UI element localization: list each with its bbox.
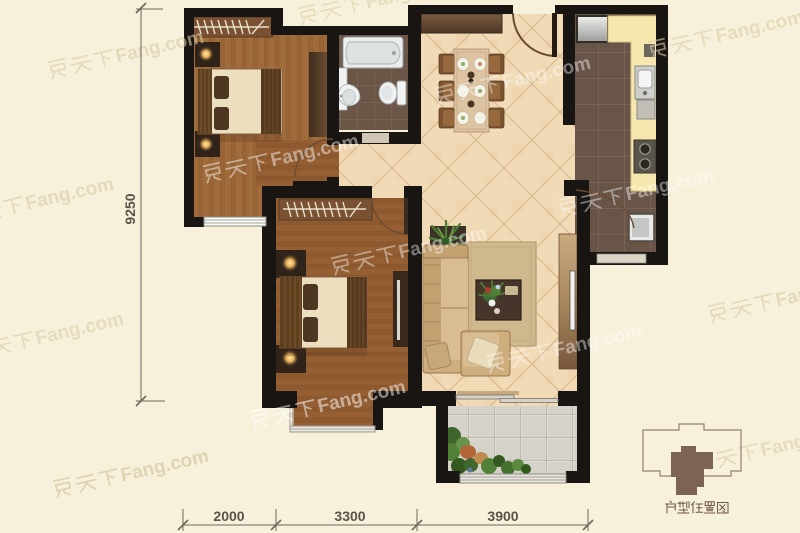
svg-text:3900: 3900 <box>487 508 518 524</box>
svg-text:3300: 3300 <box>334 508 365 524</box>
svg-text:9250: 9250 <box>122 193 138 224</box>
svg-text:2000: 2000 <box>213 508 244 524</box>
